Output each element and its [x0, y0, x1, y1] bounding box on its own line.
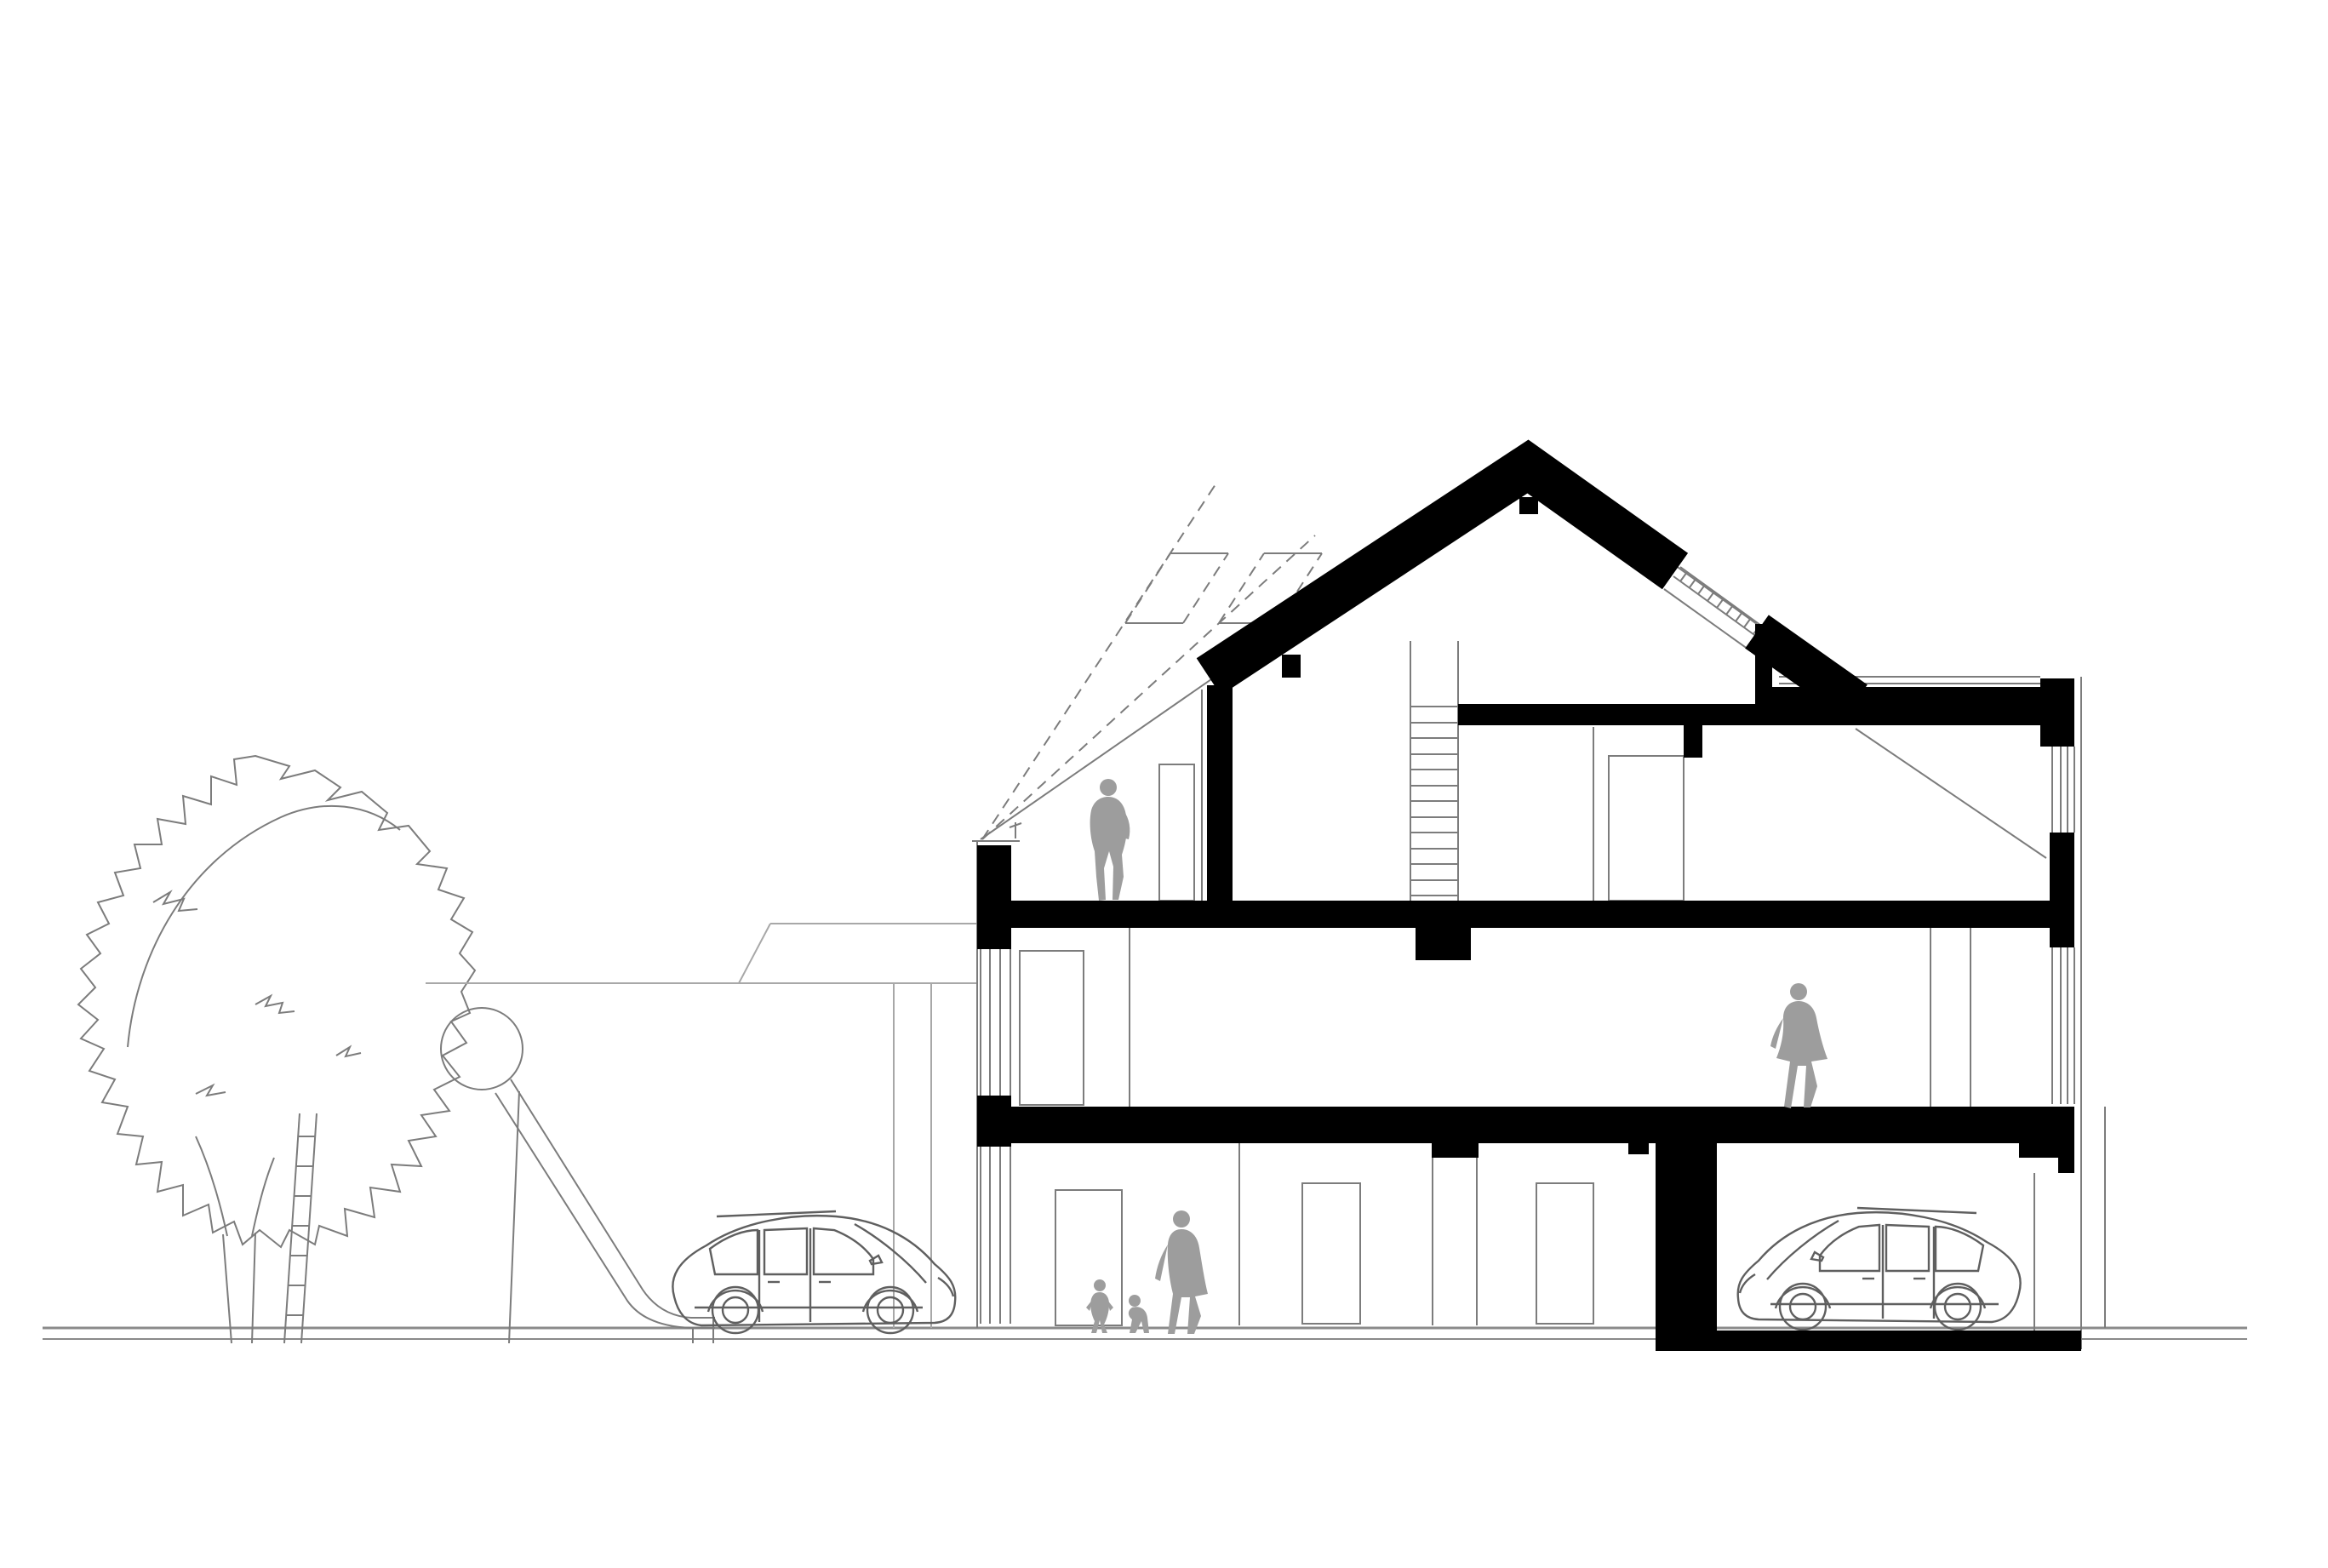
parked-car-outside	[672, 1211, 955, 1333]
downstand-beam-cut	[1628, 1143, 1649, 1154]
upper-floor-door-frame	[1020, 951, 1084, 1105]
tree-inner-scribble	[336, 1047, 361, 1056]
flat-roof-slab-cut	[1458, 704, 1755, 725]
tree-inner-scribble	[196, 1085, 226, 1096]
flat-roof-slab-cut	[1755, 687, 2040, 725]
downstand-beam-cut	[1416, 928, 1471, 960]
slide-ladder-rail	[301, 1113, 317, 1343]
right-wall-window	[2052, 947, 2074, 1104]
ground-floor-door-frame	[1302, 1183, 1360, 1324]
cut-structure	[977, 466, 2081, 1351]
background-annex	[426, 924, 977, 1328]
slide-support	[509, 1091, 519, 1343]
section-drawing	[0, 0, 2328, 1568]
attic-door-frame	[1609, 756, 1684, 901]
parapet-corner-cut	[2040, 678, 2074, 747]
left-wall-window	[981, 947, 1010, 1096]
slab-step-cut	[2058, 1158, 2074, 1173]
tree-canopy	[78, 756, 475, 1247]
left-wall-window	[981, 1147, 1010, 1324]
far-ceiling-line	[1664, 589, 1757, 655]
sloped-ceiling-line	[1856, 729, 2046, 858]
right-wall-window	[2052, 747, 2074, 833]
section-drawing-page	[0, 0, 2328, 1568]
door-lintel-cut	[1684, 725, 1702, 758]
tree-branch	[252, 1158, 274, 1236]
roof-projection-dashed-line	[982, 535, 1315, 839]
man-in-attic	[1090, 779, 1130, 901]
garage-retaining-wall-cut	[1656, 1143, 1717, 1332]
roof-projection-dashed-line	[982, 482, 1217, 839]
slide-top-dome	[441, 1008, 523, 1090]
car-in-garage	[1738, 1208, 2021, 1330]
slide-ladder-rail	[284, 1113, 300, 1343]
attic-floor-slab-cut	[977, 901, 2074, 928]
slide-chute-lower	[495, 1093, 715, 1328]
attic-wall-cut	[1207, 685, 1233, 928]
tree-inner-scribble	[255, 996, 295, 1013]
gable-roof-cut	[1209, 466, 1675, 677]
skylight-window	[1125, 553, 1228, 623]
ground-floor-door-frame	[1536, 1183, 1593, 1324]
ridge-purlin-cut	[1519, 497, 1538, 514]
upper-floor-slab-cut	[977, 1107, 2074, 1143]
adult-with-children	[1155, 1210, 1208, 1334]
woman-on-upper-floor	[1770, 983, 1828, 1108]
roof-glazing-hatch	[1680, 572, 1760, 634]
roof-access-ladder	[1410, 641, 1458, 901]
ladder-rungs	[1410, 707, 1458, 896]
attic-window-frame	[1159, 764, 1194, 901]
parapet-vent	[1010, 822, 1021, 838]
window-mullions	[981, 747, 2074, 1324]
slide-chute-upper	[511, 1079, 715, 1318]
tree	[78, 756, 475, 1343]
annex-roof-slope	[739, 924, 770, 983]
roof-purlin-cut	[1282, 655, 1301, 678]
slab-step-cut	[2019, 1143, 2074, 1158]
playground-slide	[284, 1008, 715, 1343]
left-parapet-cut	[977, 845, 1011, 949]
tree-inner-foliage	[128, 806, 400, 1047]
downstand-beam-cut	[1432, 1143, 1479, 1158]
vehicles	[672, 1208, 2020, 1333]
garage-floor-slab-cut	[1656, 1331, 2081, 1351]
right-wall-cut	[2050, 833, 2074, 947]
roof-glazing-edge	[1673, 576, 1757, 637]
